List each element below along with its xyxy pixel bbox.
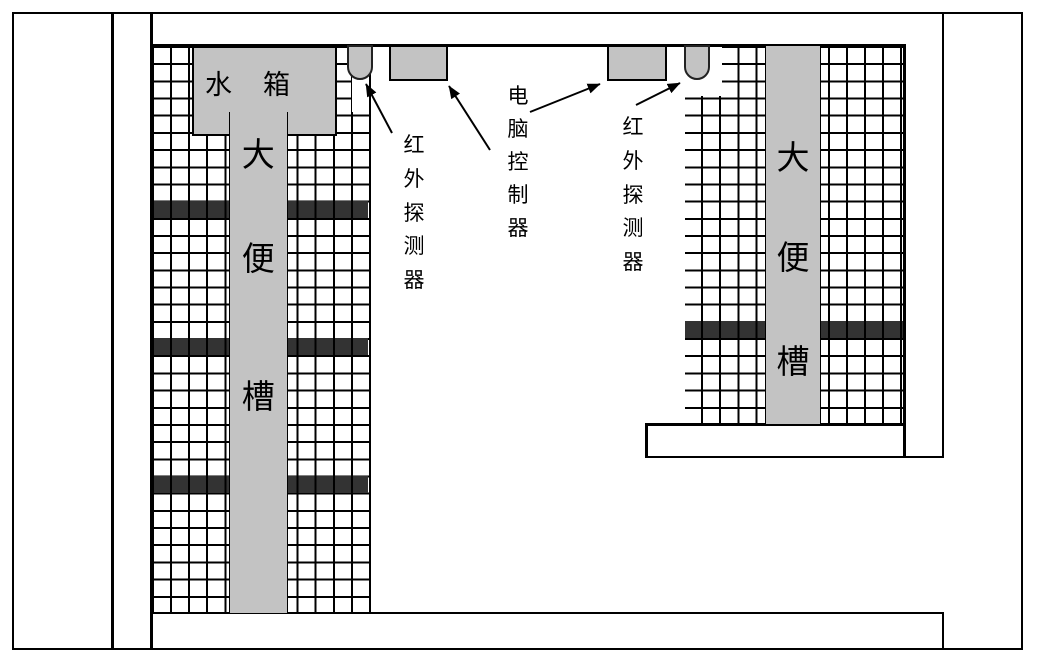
trough-label-char: 槽 xyxy=(230,380,288,414)
label-left-ir-detector: 红 外 探 测 器 xyxy=(402,129,426,298)
toilet-floor-plan-diagram: 水 箱 大 便 槽 大 便 槽 红 外 探 测 器 电 脑 控 制 器 红 外 … xyxy=(0,0,1039,657)
trough-label-char: 便 xyxy=(230,242,288,276)
water-tank-label-char: 水 xyxy=(205,72,232,99)
bottom-step-right-line xyxy=(942,612,945,649)
ir-detector-left xyxy=(347,45,373,80)
controller-box-right xyxy=(607,45,667,81)
label-right-ir-detector: 红 外 探 测 器 xyxy=(621,111,645,280)
label-computer-controller: 电 脑 控 制 器 xyxy=(506,80,530,245)
water-tank-label-char: 箱 xyxy=(263,72,290,99)
trough-label-char: 大 xyxy=(766,141,820,175)
ir-detector-right xyxy=(684,45,710,80)
right-wall-line-outer xyxy=(942,12,945,458)
right-platform-left-line xyxy=(645,423,648,458)
right-toilet-trough: 大 便 槽 xyxy=(765,46,821,424)
left-toilet-trough: 大 便 槽 xyxy=(229,112,289,613)
right-wall-line-inner xyxy=(903,44,906,458)
controller-box-left xyxy=(389,45,448,81)
left-wall-line-1 xyxy=(111,12,114,648)
trough-label-char: 槽 xyxy=(766,345,820,379)
left-wall-line-2 xyxy=(150,12,153,648)
trough-label-char: 便 xyxy=(766,241,820,275)
right-platform-bottom-line xyxy=(645,456,944,459)
trough-label-char: 大 xyxy=(230,138,288,172)
